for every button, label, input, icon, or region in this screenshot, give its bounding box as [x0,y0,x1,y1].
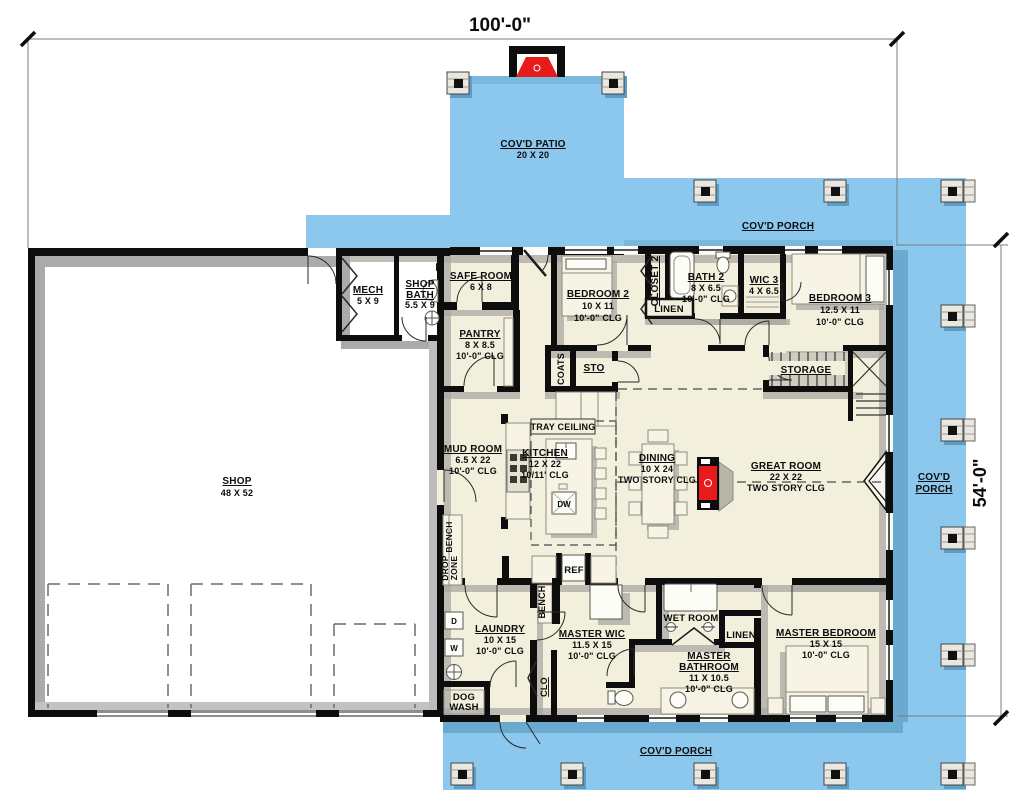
svg-text:BENCH: BENCH [537,585,547,618]
svg-text:11 X 10.5: 11 X 10.5 [689,673,729,683]
svg-text:PANTRY: PANTRY [459,329,500,340]
svg-text:BATH 2: BATH 2 [688,272,725,283]
svg-text:COV'D PORCH: COV'D PORCH [640,746,712,757]
svg-text:10'-0" CLG: 10'-0" CLG [682,294,730,304]
svg-text:DW: DW [557,500,571,509]
svg-text:COATS: COATS [556,353,566,385]
svg-text:10'-0" CLG: 10'-0" CLG [476,646,524,656]
svg-text:10'-0" CLG: 10'-0" CLG [802,650,850,660]
svg-text:48 X 52: 48 X 52 [221,488,253,498]
svg-text:100'-0": 100'-0" [469,15,531,36]
svg-text:MASTER BEDROOM: MASTER BEDROOM [776,628,876,639]
svg-text:COV'D PATIO: COV'D PATIO [500,139,565,150]
svg-text:BATHROOM: BATHROOM [679,662,739,673]
svg-text:15 X 15: 15 X 15 [810,639,842,649]
svg-text:WASH: WASH [449,702,478,713]
svg-text:SHOP: SHOP [405,279,434,290]
svg-text:PORCH: PORCH [915,484,952,495]
svg-text:10'-0" CLG: 10'-0" CLG [568,651,616,661]
svg-text:10/11' CLG: 10/11' CLG [521,470,569,480]
svg-text:STO: STO [584,363,605,374]
svg-text:LINEN: LINEN [726,630,756,641]
svg-text:BEDROOM 3: BEDROOM 3 [809,293,872,304]
svg-text:5.5 X 9: 5.5 X 9 [405,300,435,310]
svg-text:10 X 11: 10 X 11 [582,301,614,311]
svg-text:WIC 3: WIC 3 [750,275,779,286]
svg-text:12.5 X 11: 12.5 X 11 [820,305,860,315]
svg-text:BEDROOM 2: BEDROOM 2 [567,289,630,300]
svg-text:D: D [451,617,457,626]
svg-text:4 X 6.5: 4 X 6.5 [749,286,779,296]
svg-text:10 X 24: 10 X 24 [641,464,673,474]
svg-text:STORAGE: STORAGE [781,365,832,376]
svg-text:COV'D PORCH: COV'D PORCH [742,221,814,232]
svg-text:DINING: DINING [639,453,675,464]
svg-text:5 X 9: 5 X 9 [357,296,379,306]
svg-text:REF: REF [564,565,584,576]
svg-text:TWO STORY CLG: TWO STORY CLG [618,475,696,485]
svg-text:8 X 8.5: 8 X 8.5 [465,340,495,350]
svg-text:TRAY CEILING: TRAY CEILING [531,422,596,432]
svg-text:10'-0" CLG: 10'-0" CLG [456,351,504,361]
svg-text:10 X 15: 10 X 15 [484,635,516,645]
svg-text:LAUNDRY: LAUNDRY [475,624,525,635]
svg-text:10'-0" CLG: 10'-0" CLG [685,684,733,694]
svg-text:W: W [450,644,458,653]
svg-text:10'-0" CLG: 10'-0" CLG [574,313,622,323]
svg-text:MUD ROOM: MUD ROOM [444,444,502,455]
svg-text:20 X 20: 20 X 20 [517,150,549,160]
svg-text:KITCHEN: KITCHEN [522,448,568,459]
svg-text:8 X 6.5: 8 X 6.5 [691,283,721,293]
svg-text:ZONE: ZONE [449,556,459,581]
svg-text:GREAT ROOM: GREAT ROOM [751,461,821,472]
svg-text:MASTER WIC: MASTER WIC [559,629,625,640]
svg-text:MECH: MECH [353,285,383,296]
svg-text:MASTER: MASTER [687,651,731,662]
svg-text:COV'D: COV'D [918,472,950,483]
svg-text:54'-0": 54'-0" [970,459,990,508]
svg-text:SAFE ROOM: SAFE ROOM [450,271,512,282]
svg-text:22 X 22: 22 X 22 [770,472,802,482]
svg-text:12 X 22: 12 X 22 [529,459,561,469]
svg-text:10'-0" CLG: 10'-0" CLG [449,466,497,476]
svg-text:CLOSET 2: CLOSET 2 [650,256,661,307]
svg-text:6 X 8: 6 X 8 [470,282,492,292]
svg-text:WET ROOM: WET ROOM [664,613,719,624]
svg-text:11.5 X 15: 11.5 X 15 [572,640,612,650]
svg-text:TWO STORY CLG: TWO STORY CLG [747,483,825,493]
svg-text:6.5 X 22: 6.5 X 22 [455,455,490,465]
svg-text:BENCH: BENCH [444,521,454,552]
svg-text:SHOP: SHOP [222,476,251,487]
svg-text:CLO: CLO [539,677,549,697]
svg-text:LINEN: LINEN [654,304,684,315]
svg-text:10'-0" CLG: 10'-0" CLG [816,317,864,327]
